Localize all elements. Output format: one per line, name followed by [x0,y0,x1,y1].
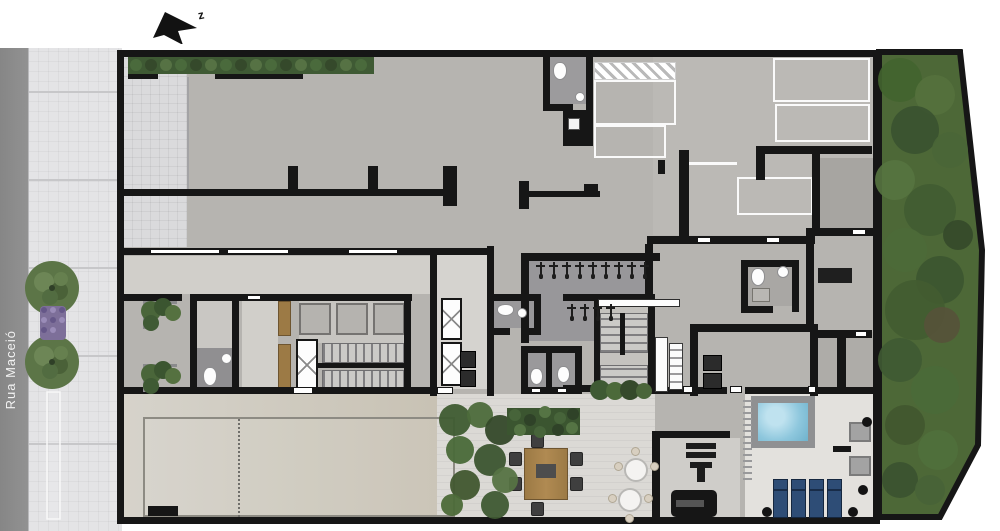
wall [117,50,124,517]
dumbbell-rack [686,443,716,449]
door-insert [531,388,541,393]
wall [404,294,411,394]
trellis [743,398,752,480]
shelving [669,343,683,390]
garden [875,52,982,517]
wall [652,431,660,523]
wall [543,50,550,110]
parking-space-outline [594,80,676,125]
north-arrow-icon: z [150,8,206,44]
patio-fence-dotted [238,419,240,517]
bicycle-icon [606,304,615,321]
bicycle-icon [601,262,610,279]
sun-lounger [809,479,824,518]
wall [117,50,963,57]
sink-fixture [221,353,232,364]
wall [316,363,406,368]
door-insert [150,249,220,254]
elevator [296,339,318,391]
door-insert [683,386,693,393]
door-insert [852,229,866,235]
weight-bench [697,464,705,482]
wall [741,260,799,267]
sink-fixture [777,266,789,278]
wall [815,387,873,394]
wall [679,150,689,238]
equipment-box [703,355,722,371]
toilet-fixture [553,62,567,80]
wall [190,294,412,301]
door-insert [293,387,313,394]
wall [690,324,818,332]
elevator [441,342,462,386]
door-insert [247,295,261,300]
wall [806,244,814,332]
wall [312,387,437,394]
floor-storage [820,158,873,228]
kitchen-counter [818,268,852,283]
elevator [441,298,462,340]
wall [494,328,510,335]
wall [117,517,880,524]
wall [756,146,765,180]
dining-chair [570,477,583,491]
wall [122,387,294,394]
wall [521,253,660,261]
wall [741,260,748,312]
service-chute [460,370,476,387]
wall [745,387,815,394]
side-table [833,446,851,452]
wall [524,328,541,335]
door-insert [697,237,711,243]
parking-divider-line [689,162,737,165]
pool-water [758,403,808,441]
bicycle-icon [614,262,623,279]
bicycle-icon [575,262,584,279]
bicycle-icon [627,262,636,279]
door-insert [766,237,780,243]
spotlight-icon [862,417,872,427]
wall [648,298,655,392]
parking-space-outline [773,58,870,102]
sink-fixture [575,92,585,102]
wall [812,150,820,236]
street-label: Rua Maceió [3,330,18,409]
sink-fixture [517,308,527,318]
toilet-fixture [203,367,217,386]
bicycle-icon [562,262,571,279]
floor-joint [187,77,189,189]
wood-cabinet [278,344,291,389]
floor-corridor [122,256,430,294]
dining-chair [570,452,583,466]
service-chute [460,351,476,368]
sun-lounger [791,479,806,518]
dining-chair [531,502,544,516]
toilet-fixture [497,304,514,316]
utility-sink [568,118,580,130]
staircase-flight [322,343,406,363]
bistro-table [618,488,642,512]
panel-door [655,337,668,392]
wall [658,160,665,174]
wall [430,248,494,255]
wall [792,260,799,312]
equipment-pad [373,303,405,335]
wall [620,313,625,355]
ramp [124,57,187,247]
wall [215,73,303,79]
parking-space-outline [737,177,813,215]
door-insert [730,386,742,393]
stool [631,447,640,456]
wall [443,166,457,206]
wall [190,294,197,394]
wall [584,184,598,196]
staircase-flight [600,365,648,387]
equipment-pad [299,303,331,335]
wall [741,306,773,313]
bicycle-icon [549,262,558,279]
wall [837,338,846,390]
wall [652,431,730,438]
wall [128,73,158,79]
lounge-seat [849,456,871,476]
door-insert [437,387,453,394]
dining-chair [509,477,522,491]
bistro-table [624,458,648,482]
sun-lounger [773,479,788,518]
hatched-no-parking-strip [594,62,676,80]
bicycle-icon [593,304,602,321]
stool [650,462,659,471]
wall [563,385,627,392]
wall [873,52,880,517]
wall [487,246,494,396]
wall [122,294,182,301]
bicycle-icon [580,304,589,321]
dining-chair [531,434,544,448]
dumbbell-rack [686,452,716,458]
equipment-pad [336,303,368,335]
spotlight-icon [858,485,868,495]
toilet-fixture [751,268,765,286]
toilet-fixture [557,366,570,383]
wall [521,346,582,353]
stool [608,494,617,503]
floor-plan: Rua Maceió z [0,0,1000,531]
equipment-box [703,373,722,389]
street: Rua Maceió [0,48,28,531]
stool [644,494,653,503]
wall [232,300,239,394]
parking-space-outline [594,125,666,158]
bicycle-icon [588,262,597,279]
bicycle-icon [567,304,576,321]
stool [625,514,634,523]
door-insert [557,388,567,393]
wood-cabinet [278,301,291,336]
door-insert [348,249,398,254]
stool [614,462,623,471]
wall [430,255,437,396]
bicycle-icon [536,262,545,279]
patio-court-outline [143,417,455,517]
wall [122,189,455,196]
dining-chair [509,452,522,466]
table-runner [536,464,556,478]
door-insert [855,331,867,337]
spotlight-icon [848,507,858,517]
door-insert [808,386,816,393]
floor-room [197,301,232,348]
treadmill-belt [676,500,704,507]
parking-space-outline [775,104,870,142]
wall [647,236,815,244]
bathtub-fixture [752,288,770,302]
sun-lounger [827,479,842,518]
door-insert [227,249,289,254]
spotlight-icon [762,507,772,517]
toilet-fixture [530,368,543,385]
floor-corridor [242,301,278,389]
wall [546,353,552,389]
bicycle-icon [640,262,649,279]
sidewalk [28,48,122,531]
entry-mat [148,506,178,516]
